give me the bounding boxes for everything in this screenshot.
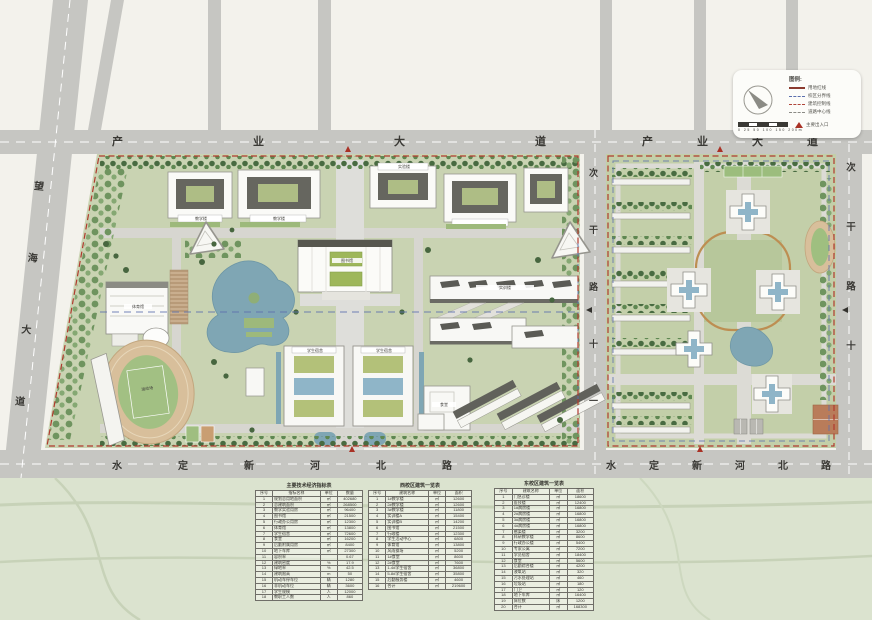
- cross-building-3: [756, 270, 800, 314]
- table-cell: 18: [256, 595, 273, 601]
- table-title: 西校区建筑一览表: [368, 482, 472, 489]
- table-cell: ㎡: [549, 604, 567, 610]
- label-canteen: 食堂: [432, 402, 456, 407]
- cross-building-1: [726, 190, 770, 234]
- legend-item-label: 建筑控制线: [808, 101, 831, 107]
- legend-entrance-label: 主要出入口: [806, 122, 829, 128]
- table-cell: 人: [320, 595, 337, 601]
- table-cell: 合计: [386, 583, 429, 589]
- table-cell: 20: [495, 604, 513, 610]
- table-row: 20合计㎡168300: [495, 604, 594, 610]
- north-compass-icon: [740, 82, 776, 118]
- table-cell: ㎡: [428, 583, 445, 589]
- lab-building-2: [444, 174, 516, 226]
- campus-master-plan: 产业大道 产业大道 水定新河北路 水定新河北路 望海大道 次干路十一 次干路十 …: [0, 0, 872, 620]
- teaching-building-3: [524, 168, 568, 212]
- scale-bar: [738, 122, 788, 127]
- legend-item-label: 校区分界线: [808, 93, 831, 99]
- label-lab-a: 实验楼: [378, 164, 430, 169]
- road-label-bottom-right: 水定新河北路: [606, 457, 864, 472]
- table-title: 东校区建筑一览表: [494, 480, 594, 487]
- dorm-quad-east: [353, 346, 413, 426]
- label-dorm-b: 学生宿舍: [361, 348, 407, 353]
- teaching-building-1: [168, 172, 232, 222]
- teaching-building-2: [238, 170, 320, 222]
- label-gym: 体育馆: [124, 304, 152, 309]
- legend-line-sample-icon: [789, 87, 805, 89]
- label-library: 图书馆: [332, 258, 362, 263]
- scale-ticks: 0 25 50 100 150 200m: [738, 128, 803, 132]
- table-cell: 16: [369, 583, 386, 589]
- road-label-top-left: 产业大道: [112, 133, 676, 149]
- legend-items: 用地红线校区分界线建筑控制线道路中心线: [789, 84, 831, 116]
- legend-item-label: 道路中心线: [808, 109, 831, 115]
- table-row: 16合计㎡219600: [369, 583, 472, 589]
- legend-line-sample-icon: [789, 96, 805, 97]
- dorm-quad-west: [284, 346, 344, 426]
- label-teach-b: 教学楼: [250, 216, 308, 221]
- mini-running-track: [805, 221, 835, 273]
- legend-line-sample-icon: [789, 112, 805, 113]
- table-cell: 合计: [512, 604, 549, 610]
- table-cell: 860: [337, 595, 362, 601]
- table-cell: 教职工人数: [272, 595, 320, 601]
- legend-item-label: 用地红线: [808, 85, 826, 91]
- label-teach-a: 教学楼: [178, 216, 224, 221]
- legend: 图例: 用地红线校区分界线建筑控制线道路中心线 0 25 50 100 150 …: [733, 70, 861, 138]
- table-row: 18教职工人数人860: [256, 595, 363, 601]
- legend-entrance-item: 主要出入口: [795, 122, 829, 128]
- legend-line-sample-icon: [789, 104, 805, 105]
- cross-building-2: [667, 268, 711, 312]
- table-title: 主要技术经济指标表: [255, 482, 363, 489]
- road-label-right: 次干路十: [842, 162, 856, 400]
- legend-item: 用地红线: [789, 84, 831, 92]
- library-building: [298, 240, 392, 300]
- west-campus-building-table: 西校区建筑一览表序号建筑名称单位面积11#教学楼㎡1260022#教学楼㎡126…: [368, 482, 472, 590]
- table-cell: 219600: [446, 583, 472, 589]
- label-dorm-a: 学生宿舍: [292, 348, 338, 353]
- cross-building-5: [752, 374, 792, 414]
- east-campus-building-table: 东校区建筑一览表序号建筑名称单位面积1门急诊楼㎡186002医技楼㎡124003…: [494, 480, 594, 611]
- road-label-middle: 次干路十一: [587, 168, 600, 453]
- road-label-bottom-left: 水定新河北路: [112, 457, 508, 472]
- label-lab-b: 实训楼: [476, 285, 534, 290]
- legend-item: 建筑控制线: [789, 100, 831, 108]
- economic-indicators-table: 主要技术经济指标表序号指标名称单位数量1规划总用地面积㎡4026802总建筑面积…: [255, 482, 363, 601]
- lab-building-1: [370, 163, 436, 208]
- legend-item: 校区分界线: [789, 92, 831, 100]
- entrance-triangle-icon: [795, 122, 803, 128]
- legend-title: 图例:: [789, 75, 802, 83]
- gymnasium-building: [106, 282, 169, 348]
- legend-item: 道路中心线: [789, 108, 831, 116]
- table-cell: 168300: [567, 604, 593, 610]
